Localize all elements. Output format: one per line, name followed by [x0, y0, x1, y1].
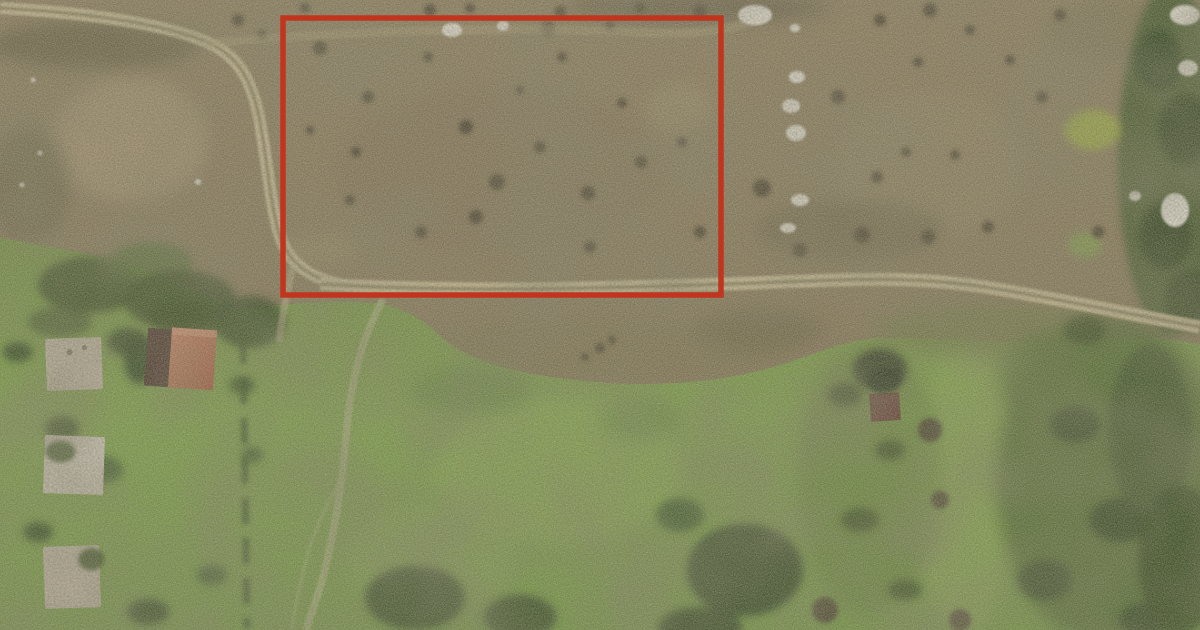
aerial-photo — [0, 0, 1200, 630]
satellite-image-stage — [0, 0, 1200, 630]
noise-texture — [0, 0, 1200, 630]
